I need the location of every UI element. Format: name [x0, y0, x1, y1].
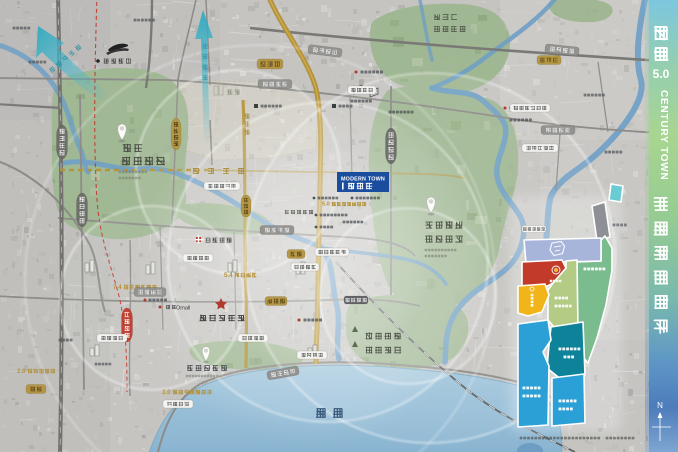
svg-text:2.0: 2.0: [17, 368, 26, 375]
svg-text:MODERN TOWN: MODERN TOWN: [341, 177, 385, 183]
svg-text:5.4: 5.4: [224, 272, 233, 279]
svg-text:7.4: 7.4: [113, 284, 122, 291]
svg-text:5.0: 5.0: [322, 202, 330, 208]
svg-text:3.0: 3.0: [162, 389, 171, 396]
svg-text:N: N: [657, 401, 663, 410]
svg-text:5.0: 5.0: [653, 67, 670, 81]
svg-text:Omall: Omall: [176, 306, 190, 312]
svg-text:CENTURY TOWN: CENTURY TOWN: [658, 90, 669, 181]
